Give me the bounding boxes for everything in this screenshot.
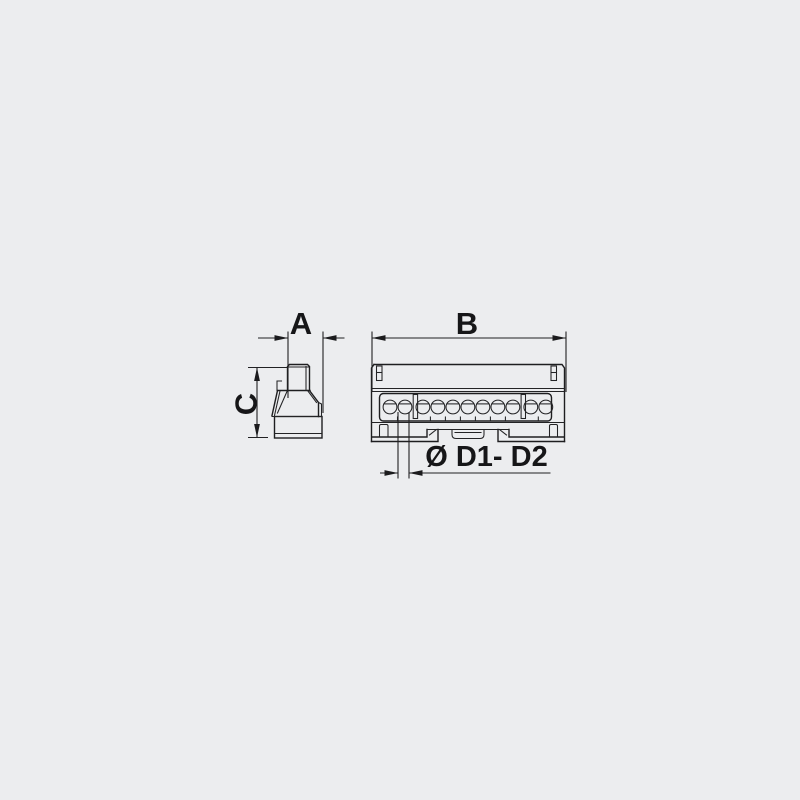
front-view	[372, 365, 565, 442]
dimension-b: B	[372, 306, 566, 392]
catalog-diagram-page: A B C Ø D1- D2	[0, 0, 800, 800]
right-clip	[551, 366, 557, 381]
terminal-screw	[383, 400, 397, 414]
terminal-screw	[461, 400, 475, 414]
din-recess-right-notch	[500, 430, 507, 436]
dim-a-label: A	[290, 306, 312, 341]
arrowhead	[372, 335, 386, 341]
terminal-screw	[539, 400, 553, 414]
din-latch-tab	[452, 430, 484, 439]
left-foot-slot	[380, 425, 389, 438]
arrowhead	[553, 335, 567, 341]
side-view-base	[275, 417, 323, 439]
dimension-c: C	[229, 368, 289, 438]
arrowhead	[323, 335, 337, 341]
arrowhead	[385, 470, 399, 476]
terminal-screw	[446, 400, 460, 414]
right-foot-slot	[550, 425, 558, 438]
terminal-screw	[431, 400, 445, 414]
terminal-screw	[491, 400, 505, 414]
arrowhead	[275, 335, 289, 341]
side-view	[272, 365, 322, 439]
technical-drawing: A B C Ø D1- D2	[0, 0, 800, 800]
dim-c-label: C	[229, 393, 264, 415]
dim-b-label: B	[456, 306, 478, 341]
terminal-group-divider	[521, 395, 525, 419]
dim-d-label: Ø D1- D2	[425, 441, 547, 473]
arrowhead	[254, 368, 260, 382]
terminal-screw	[398, 400, 412, 414]
terminal-group-divider	[413, 395, 417, 419]
dimension-a: A	[258, 306, 345, 413]
terminal-screw	[506, 400, 520, 414]
left-clip	[377, 366, 383, 381]
arrowhead	[409, 470, 423, 476]
arrowhead	[254, 424, 260, 438]
terminal-screw	[476, 400, 490, 414]
din-recess-left-notch	[430, 430, 437, 436]
